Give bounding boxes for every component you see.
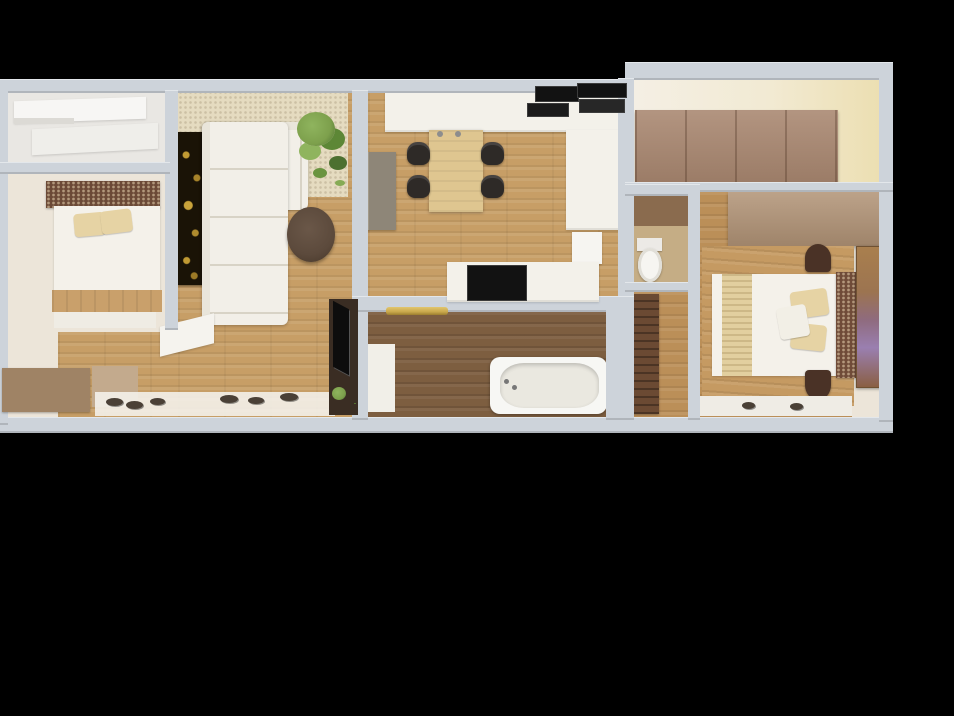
wall-bedroom1-living <box>165 90 178 330</box>
shoes <box>106 398 123 406</box>
bed2-runner <box>722 274 752 376</box>
bed2-white-pillow <box>775 304 810 341</box>
bed1-footboard <box>52 290 162 312</box>
nightstand <box>805 244 831 272</box>
island-dark-top <box>468 266 526 300</box>
tv-screen <box>333 301 349 376</box>
shoes <box>280 393 298 401</box>
microwave <box>578 84 626 97</box>
kitchen-island <box>447 262 599 302</box>
slippers <box>790 403 803 410</box>
bath-faucet <box>504 379 509 384</box>
dining-table <box>429 130 483 212</box>
oven <box>528 104 568 116</box>
wall-bathroom-right <box>606 296 634 420</box>
hall-cabinet <box>632 294 659 414</box>
shoes <box>150 398 165 405</box>
cooktop <box>536 87 578 101</box>
shoes <box>126 401 143 409</box>
slippers <box>742 402 755 409</box>
toilet <box>638 248 662 282</box>
shoes <box>248 397 264 404</box>
wall-closet-bedroom1 <box>0 162 170 174</box>
wall-hall-bedroom2 <box>688 184 700 420</box>
wall-top-left <box>0 79 628 93</box>
dining-chair <box>481 142 504 165</box>
bathtub <box>490 357 607 414</box>
coffee-table <box>287 207 335 262</box>
bed1-pillow <box>100 208 134 235</box>
towel-rail <box>386 307 448 315</box>
wall-right <box>879 62 893 422</box>
washing-machine <box>368 344 395 412</box>
closet-rail <box>14 118 74 124</box>
bedside-rug <box>700 396 852 416</box>
table-detail <box>455 131 461 137</box>
wardrobe-row <box>635 110 838 184</box>
shoes <box>220 395 238 403</box>
wall-top-right <box>625 62 893 80</box>
wc-back-wall <box>634 196 688 226</box>
dining-chair <box>481 175 504 198</box>
bath-faucet <box>512 385 517 390</box>
dishwasher <box>572 232 602 264</box>
tv-cabinet <box>329 299 358 415</box>
dresser <box>2 368 90 412</box>
bed1-bench <box>54 312 156 328</box>
plant-icon <box>297 112 335 146</box>
floor-plan-render <box>0 0 954 716</box>
table-detail <box>437 131 443 137</box>
small-plant-icon <box>332 387 346 400</box>
sofa-long-arm <box>202 122 288 325</box>
dining-chair <box>407 142 430 165</box>
bed2-headboard <box>836 272 856 378</box>
dining-chair <box>407 175 430 198</box>
overhead-wardrobe <box>728 192 879 246</box>
refrigerator-cabinet <box>366 152 396 230</box>
wall-bottom <box>0 417 893 433</box>
wall-art <box>178 132 205 285</box>
kitchen-appliance <box>580 100 624 112</box>
bed1-headboard <box>46 181 160 208</box>
